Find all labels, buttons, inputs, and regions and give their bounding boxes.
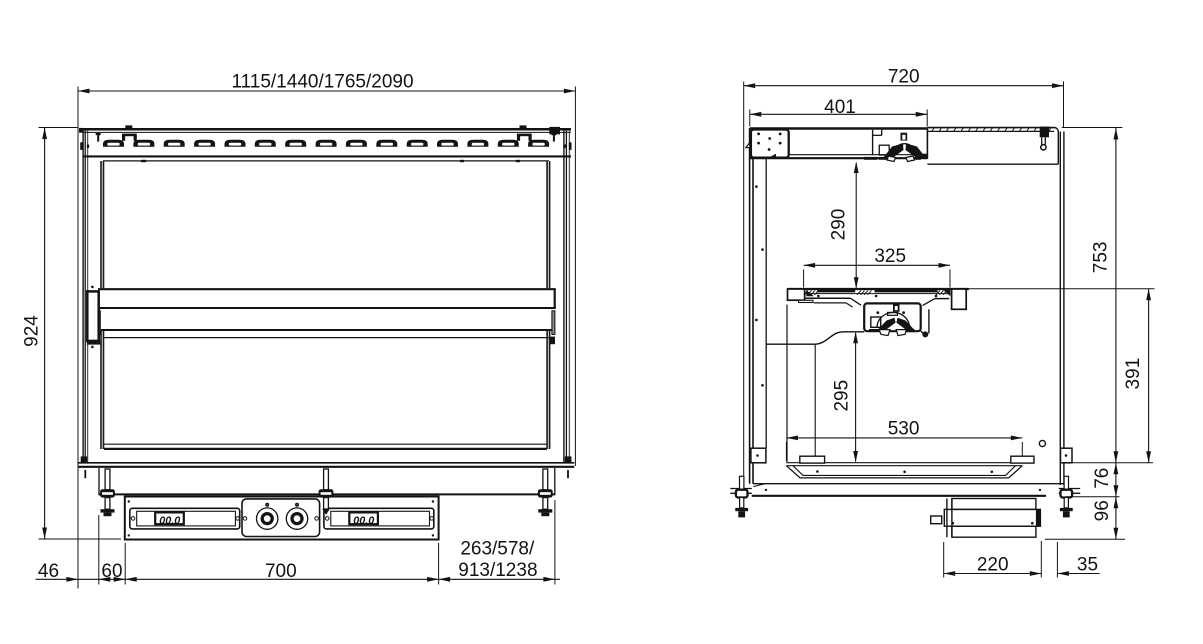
svg-text:290: 290 xyxy=(829,209,850,241)
svg-text:295: 295 xyxy=(832,380,853,412)
svg-text:46: 46 xyxy=(38,561,59,582)
svg-text:530: 530 xyxy=(888,419,920,440)
svg-text:325: 325 xyxy=(874,246,906,267)
svg-text:401: 401 xyxy=(824,97,856,118)
svg-text:391: 391 xyxy=(1123,358,1144,390)
svg-text:1115/1440/1765/2090: 1115/1440/1765/2090 xyxy=(231,71,413,92)
svg-text:60: 60 xyxy=(101,561,122,582)
svg-text:76: 76 xyxy=(1092,468,1113,489)
svg-text:263/578/: 263/578/ xyxy=(460,539,535,560)
svg-text:913/1238: 913/1238 xyxy=(458,560,537,581)
svg-text:700: 700 xyxy=(265,561,297,582)
svg-text:35: 35 xyxy=(1077,554,1098,575)
svg-text:753: 753 xyxy=(1091,242,1112,274)
svg-text:924: 924 xyxy=(22,315,43,347)
svg-text:220: 220 xyxy=(977,554,1009,575)
svg-text:720: 720 xyxy=(888,67,920,88)
svg-text:00.0: 00.0 xyxy=(353,515,374,527)
svg-text:00.0: 00.0 xyxy=(159,515,180,527)
svg-text:96: 96 xyxy=(1092,500,1113,521)
